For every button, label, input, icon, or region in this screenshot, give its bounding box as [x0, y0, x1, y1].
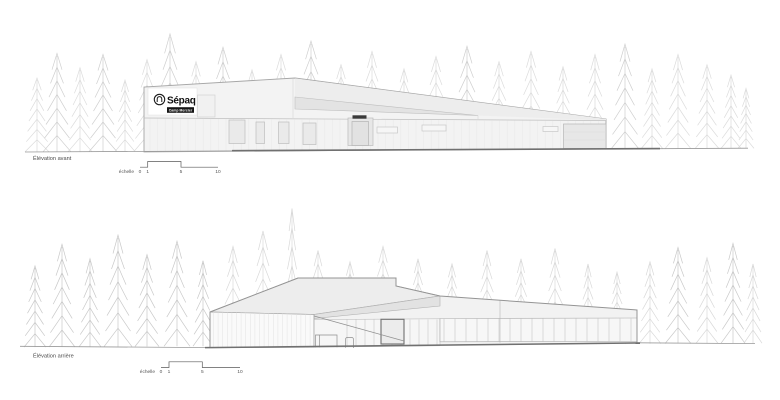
rear-scale-tick-0: 0 [160, 369, 163, 375]
rear-scale-tick-5: 5 [201, 369, 204, 375]
rear-scale-shape [161, 362, 240, 368]
front-scale-tick-1: 1 [146, 169, 149, 175]
rear-elevation-drawing: Élévation arrière échelle 0 1 5 10 [20, 208, 762, 375]
garage-door [564, 124, 607, 149]
entrance-door [352, 122, 369, 146]
front-elevation-drawing: Sépaq Camp Mercier [25, 34, 754, 175]
front-scale-shape [140, 162, 218, 168]
rear-middle-glazing [314, 319, 440, 348]
sign-brand-text: Sépaq [167, 95, 196, 106]
rear-scale-label: échelle [140, 369, 156, 375]
front-scale-tick-0: 0 [139, 169, 142, 175]
front-window-2 [422, 125, 446, 131]
rear-scale-bar: échelle 0 1 5 10 [140, 362, 243, 375]
sepaq-sign: Sépaq Camp Mercier [148, 88, 197, 115]
front-scale-tick-5: 5 [180, 169, 183, 175]
front-elevation-label: Élévation avant [33, 155, 72, 162]
front-building: Sépaq Camp Mercier [144, 78, 606, 152]
front-door-1 [229, 120, 245, 144]
elevation-drawing-canvas: Sépaq Camp Mercier [0, 0, 780, 400]
front-door-2 [256, 122, 265, 144]
front-scale-tick-10: 10 [215, 169, 221, 175]
entrance-sign [353, 115, 367, 118]
architectural-drawing-sheet: Sépaq Camp Mercier [0, 0, 780, 400]
front-door-4 [303, 123, 316, 145]
front-window-3 [543, 127, 558, 132]
front-door-3 [279, 122, 290, 144]
sign-site-text: Camp Mercier [169, 109, 193, 113]
rear-scale-tick-10: 10 [237, 369, 243, 375]
front-window-1 [377, 127, 398, 133]
front-scale-bar: échelle 0 1 5 10 [119, 162, 221, 175]
rear-scale-tick-1: 1 [168, 369, 171, 375]
front-scale-label: échelle [119, 169, 135, 175]
rear-right-glazing [440, 318, 637, 342]
front-window-square [198, 95, 216, 117]
rear-building [210, 278, 637, 348]
rear-slat-wall [210, 312, 314, 348]
rear-elevation-label: Élévation arrière [33, 353, 74, 360]
